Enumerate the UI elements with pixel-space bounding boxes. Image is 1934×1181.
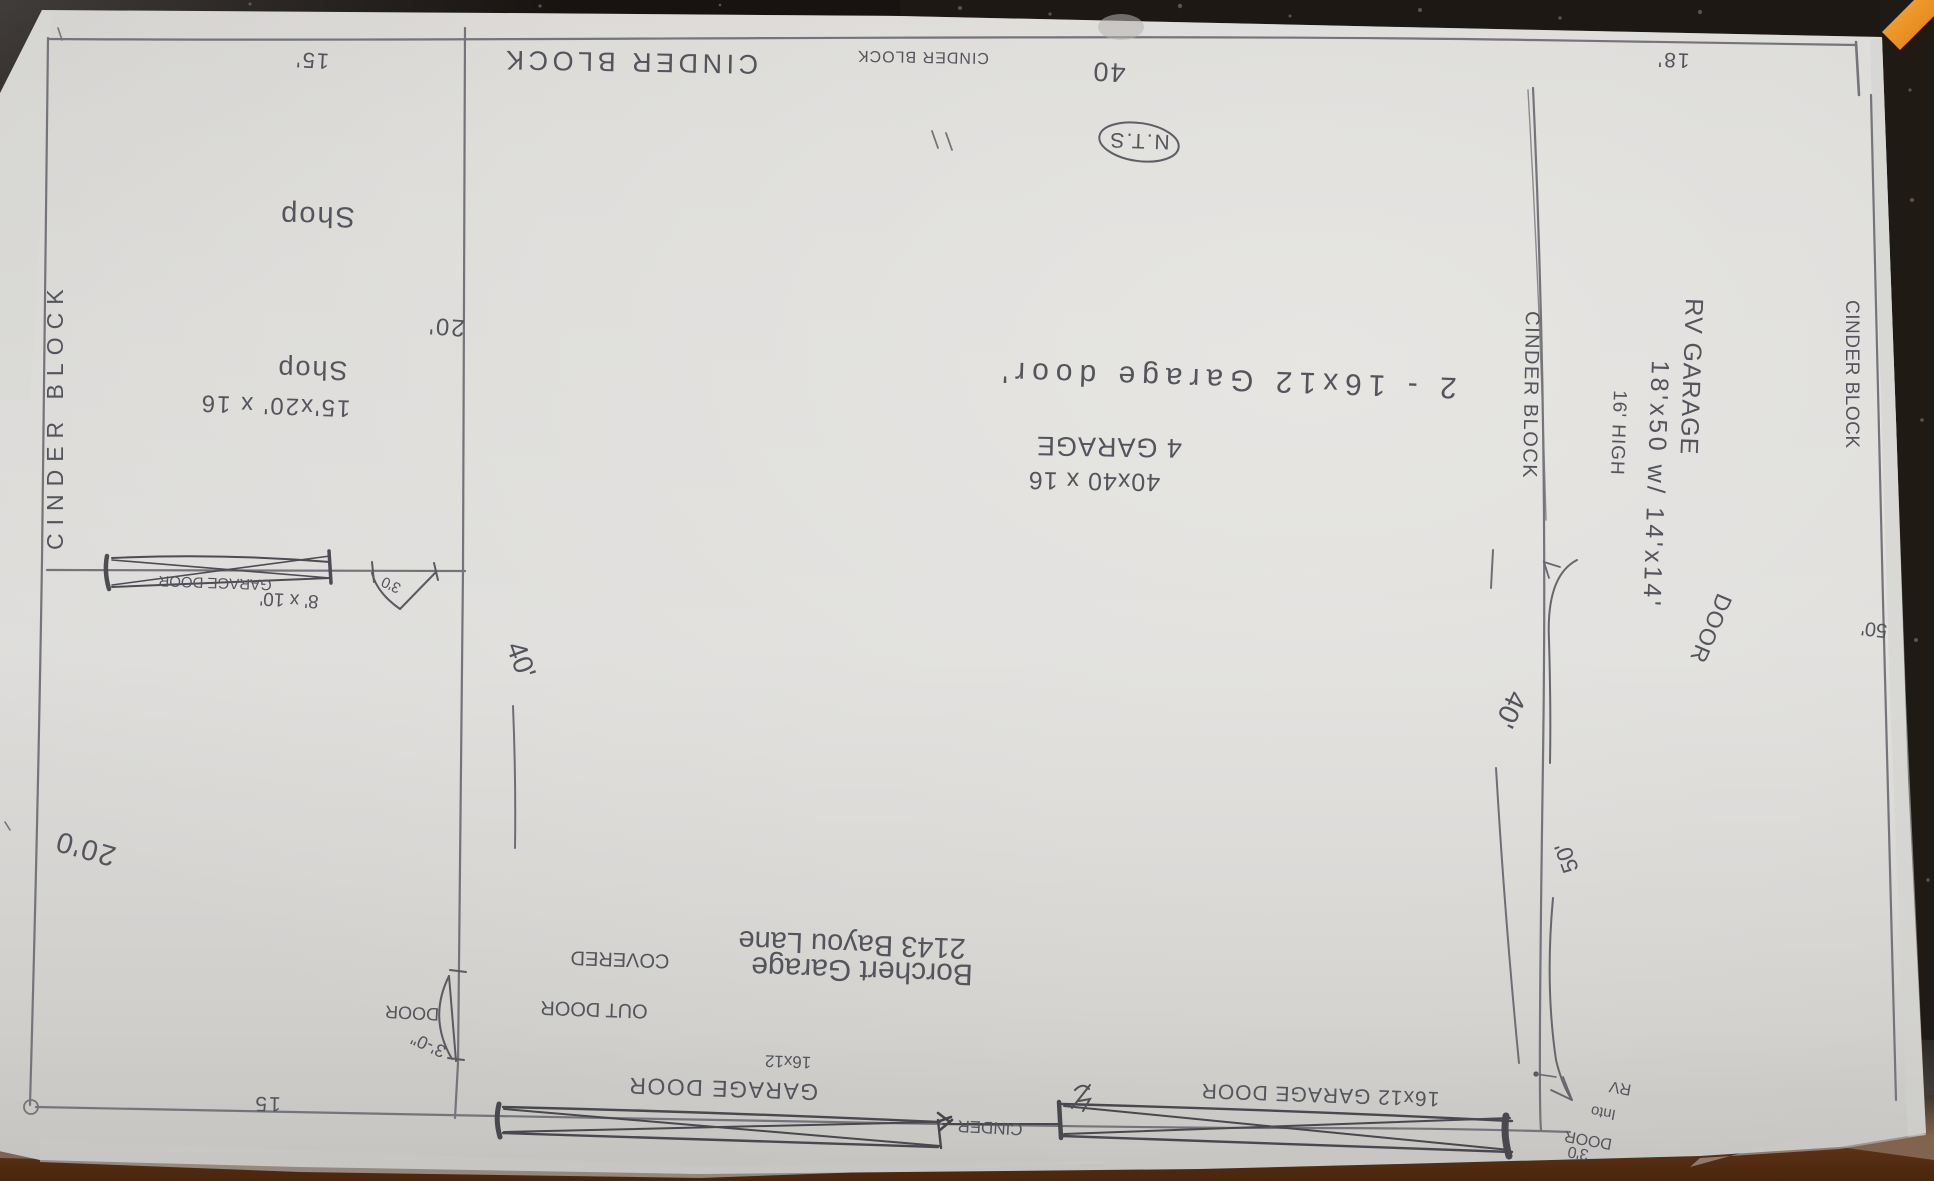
svg-text:CINDER BLOCK: CINDER BLOCK	[1841, 300, 1862, 449]
svg-text:N.T.S: N.T.S	[1108, 128, 1170, 153]
svg-text:15: 15	[253, 1092, 281, 1115]
svg-text:40: 40	[1091, 56, 1127, 88]
svg-text:40x40 x 16: 40x40 x 16	[1028, 466, 1161, 496]
svg-text:20': 20'	[426, 312, 465, 342]
svg-text:16x12: 16x12	[765, 1051, 812, 1072]
svg-text:8' x 10': 8' x 10'	[259, 587, 319, 611]
svg-text:COVERED: COVERED	[570, 946, 670, 971]
svg-text:CINDER BLOCK: CINDER BLOCK	[1518, 311, 1543, 479]
svg-text:Shop: Shop	[276, 354, 348, 385]
svg-text:18': 18'	[1656, 47, 1690, 71]
svg-text:4 GARAGE: 4 GARAGE	[1036, 431, 1183, 464]
svg-text:50': 50'	[1860, 617, 1889, 642]
svg-text:CINDER BLOCK: CINDER BLOCK	[501, 45, 758, 79]
svg-text:DOOR: DOOR	[385, 1002, 440, 1025]
svg-text:CINDER: CINDER	[957, 1116, 1023, 1138]
svg-text:CINDER BLOCK: CINDER BLOCK	[857, 47, 989, 66]
svg-text:15'x20' x 16: 15'x20' x 16	[199, 389, 350, 421]
svg-text:15': 15'	[294, 47, 330, 74]
svg-text:16' HIGH: 16' HIGH	[1606, 390, 1630, 476]
svg-text:RV GARAGE: RV GARAGE	[1675, 298, 1708, 456]
svg-text:CINDER BLOCK: CINDER BLOCK	[42, 281, 68, 550]
svg-text:OUT DOOR: OUT DOOR	[540, 996, 648, 1022]
svg-text:Shop: Shop	[279, 199, 355, 232]
